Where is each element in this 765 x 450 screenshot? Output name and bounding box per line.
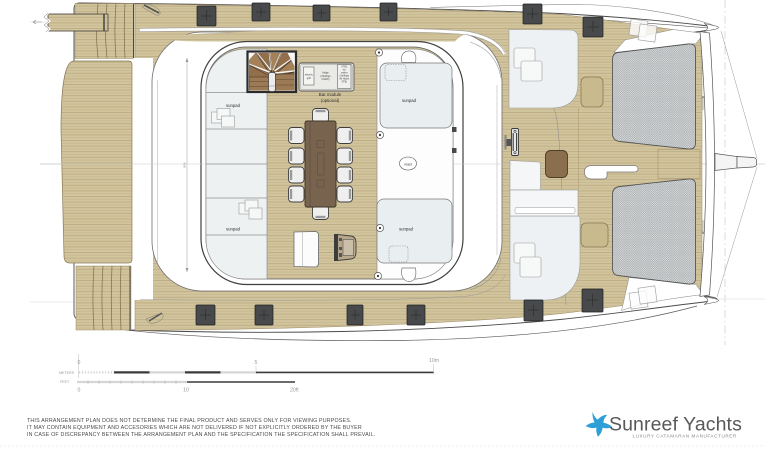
svg-text:sunpad: sunpad bbox=[402, 98, 417, 103]
svg-text:20ft: 20ft bbox=[290, 388, 299, 394]
svg-text:FEET: FEET bbox=[60, 380, 70, 384]
svg-text:sunpad: sunpad bbox=[399, 227, 414, 232]
svg-text:5600: 5600 bbox=[183, 162, 187, 168]
svg-text:C90iX): C90iX) bbox=[322, 77, 330, 81]
svg-text:IT MAY CONTAIN EQUIPMENT AND A: IT MAY CONTAIN EQUIPMENT AND ACCESORIES … bbox=[27, 425, 362, 431]
svg-text:5: 5 bbox=[255, 360, 258, 366]
svg-text:0: 0 bbox=[78, 388, 81, 394]
svg-text:Bar module: Bar module bbox=[319, 92, 342, 97]
svg-text:grill: grill bbox=[307, 76, 311, 80]
svg-text:LUXURY CATAMARAN MANUFACTURER: LUXURY CATAMARAN MANUFACTURER bbox=[633, 434, 737, 439]
svg-text:IN CASE OF DISCREPANCY BETWEEN: IN CASE OF DISCREPANCY BETWEEN THE ARRAN… bbox=[27, 432, 375, 438]
svg-text:Sunreef Yachts: Sunreef Yachts bbox=[609, 414, 742, 436]
svg-text:(optional): (optional) bbox=[321, 98, 340, 103]
svg-text:mast: mast bbox=[404, 162, 411, 166]
svg-text:METERS: METERS bbox=[59, 371, 75, 375]
svg-text:0: 0 bbox=[78, 360, 81, 366]
svg-text:sunpad: sunpad bbox=[226, 227, 241, 232]
svg-text:10: 10 bbox=[183, 388, 189, 394]
svg-text:THIS ARRANGEMENT PLAN DOES NOT: THIS ARRANGEMENT PLAN DOES NOT DETERMINE… bbox=[27, 418, 352, 424]
svg-text:10m: 10m bbox=[429, 358, 439, 364]
svg-text:XTB): XTB) bbox=[342, 81, 348, 84]
svg-text:sunpad: sunpad bbox=[226, 103, 241, 108]
